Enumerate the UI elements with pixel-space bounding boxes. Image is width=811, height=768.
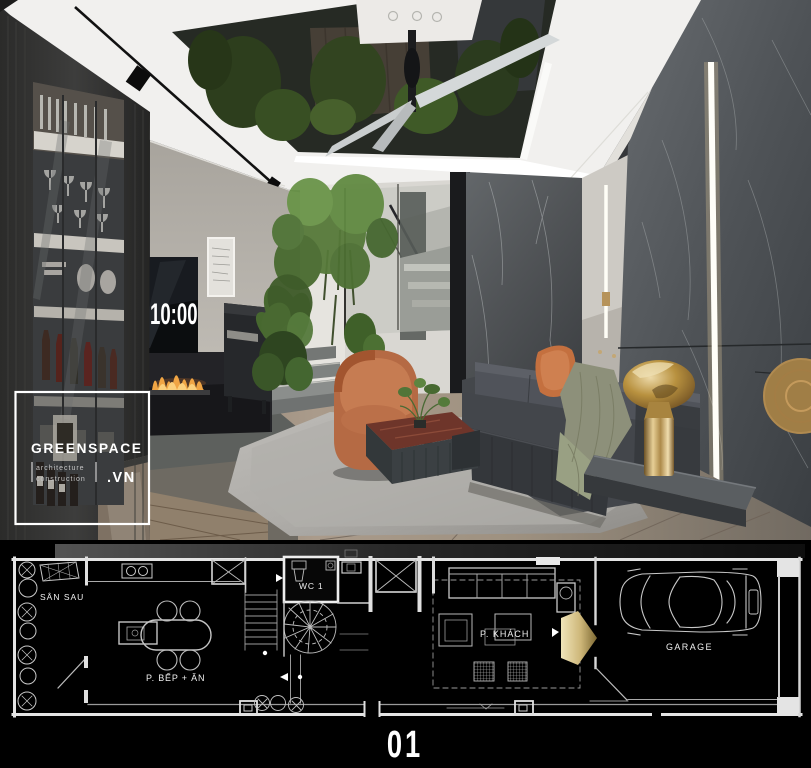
svg-text:GREENSPACE: GREENSPACE <box>31 441 143 456</box>
svg-text:10:00: 10:00 <box>150 298 198 332</box>
svg-text:01: 01 <box>387 724 423 766</box>
svg-text:P. BẾP + ĂN: P. BẾP + ĂN <box>146 673 205 683</box>
svg-text:WC 1: WC 1 <box>299 581 323 591</box>
svg-text:.VN: .VN <box>107 470 136 486</box>
svg-text:SÂN SAU: SÂN SAU <box>40 592 84 602</box>
svg-text:P. KHÁCH: P. KHÁCH <box>480 629 529 639</box>
svg-text:GARAGE: GARAGE <box>666 642 713 652</box>
svg-text:construction: construction <box>36 476 86 483</box>
svg-text:architecture: architecture <box>36 465 85 472</box>
